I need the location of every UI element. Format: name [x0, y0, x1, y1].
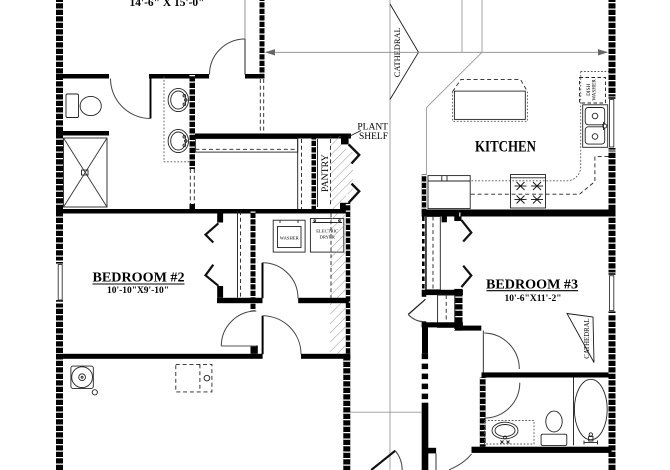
svg-text:10'-10"X9'-10": 10'-10"X9'-10": [107, 285, 169, 295]
svg-text:PLANT: PLANT: [357, 123, 388, 133]
svg-text:PANTRY: PANTRY: [320, 154, 331, 192]
svg-text:KITCHEN: KITCHEN: [475, 139, 536, 156]
svg-text:14'-6" X 15'-0": 14'-6" X 15'-0": [130, 0, 205, 9]
svg-text:WASHER: WASHER: [280, 236, 300, 241]
svg-text:10'-6"X11'-2": 10'-6"X11'-2": [505, 293, 562, 303]
svg-text:CATHEDRAL: CATHEDRAL: [584, 318, 591, 358]
svg-text:SHELF: SHELF: [359, 132, 388, 142]
svg-text:BEDROOM #2: BEDROOM #2: [93, 270, 185, 285]
svg-text:BEDROOM #3: BEDROOM #3: [486, 276, 578, 291]
svg-text:WASHER: WASHER: [592, 79, 598, 101]
